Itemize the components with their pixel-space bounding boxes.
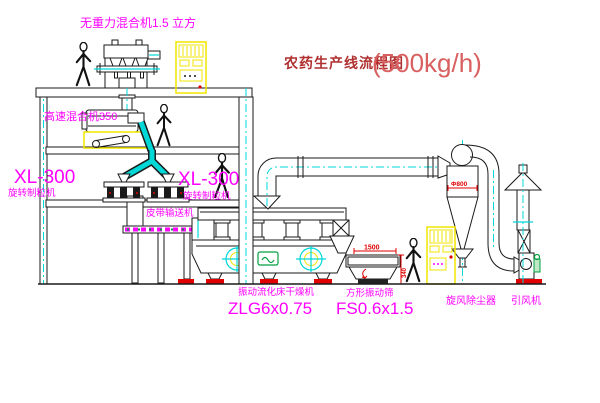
vibrating-sieve: 1500 340: [330, 220, 408, 284]
label-granulator-right-name: 旋转制粒机: [183, 190, 231, 202]
drive-pulley: [93, 141, 100, 148]
dryer-body: [192, 240, 346, 273]
drive-pulley: [123, 136, 130, 143]
cyclone-scroll: [452, 145, 473, 166]
dryer-top-manifold: [198, 208, 346, 220]
right-wall-column: [239, 88, 253, 284]
sieve-body: [349, 267, 397, 279]
label-granulator-right-model: XL-300: [178, 169, 239, 190]
induced-draft-fan: [514, 253, 542, 284]
sieve-length-dim: 1500: [354, 245, 396, 255]
label-high-speed-mixer: 高速混合机350: [44, 109, 117, 123]
sieve-length-text: 1500: [364, 245, 380, 252]
label-dryer-model: ZLG6x0.75: [228, 299, 312, 318]
cabinet-grille: [183, 46, 199, 56]
control-cabinet-top: [176, 42, 206, 93]
duct-centerline: [267, 167, 446, 206]
mixer-hopper-stems: [115, 72, 144, 78]
label-belt-conveyor: 皮带输送机: [146, 207, 194, 219]
fluid-bed-dryer: [192, 208, 346, 284]
cabinet-grille: [434, 231, 450, 242]
label-sieve-name: 方形振动筛: [346, 287, 394, 299]
conveyor-leg: [158, 233, 164, 283]
label-granulator-left-model: XL-300: [14, 167, 75, 188]
label-dryer-name: 振动流化床干燥机: [238, 286, 315, 298]
person-figure-roof: [77, 42, 90, 85]
diagram-title-capacity: (500kg/h): [372, 48, 482, 78]
roof-slab: [36, 88, 252, 97]
conveyor-leg: [132, 233, 138, 283]
gravity-free-mixer: [94, 40, 160, 88]
control-cabinet-ground: [427, 227, 455, 284]
person-figure-ground: [407, 238, 420, 281]
cyclone-dust-collector: Φ800: [447, 140, 478, 284]
granulator-left: [103, 174, 145, 202]
dryer-legs: [206, 273, 332, 284]
cyclone-diameter-text: Φ800: [451, 181, 468, 188]
label-gravity-mixer: 无重力混合机1.5 立方: [80, 15, 196, 30]
indicator-dot: [449, 255, 452, 258]
flow-diagram-svg: Φ800 1500: [0, 0, 600, 403]
dryer-feed-box: [192, 218, 214, 240]
conveyor-leg: [184, 233, 190, 279]
label-sieve-model: FS0.6x1.5: [336, 299, 414, 318]
mixer-base-box: [119, 78, 135, 88]
dryer-ports: [214, 220, 336, 240]
indicator-dot: [198, 85, 201, 88]
dryer-exhaust-duct: [254, 156, 450, 209]
label-fan: 引风机: [511, 294, 541, 307]
person-figure-floor2: [158, 104, 171, 145]
mixer-body: [104, 45, 148, 58]
fan-motor: [534, 259, 540, 272]
sieve-height-text: 340: [402, 267, 408, 278]
label-cyclone: 旋风除尘器: [446, 294, 496, 307]
pesticide-line-flow-diagram: Φ800 1500: [0, 0, 600, 403]
mixer-top-stub: [136, 40, 142, 45]
mixer-base-frame: [84, 132, 148, 148]
label-granulator-left-name: 旋转制粒机: [8, 187, 56, 199]
mixer-top-stub: [112, 40, 118, 45]
